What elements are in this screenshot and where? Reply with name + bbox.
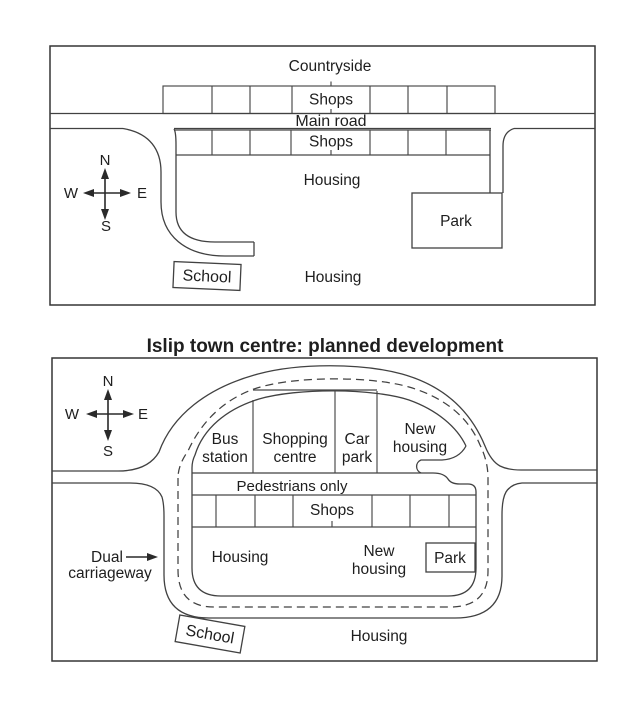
compass-now-n: N xyxy=(100,152,111,169)
car-park-label-line1: Car xyxy=(345,431,370,448)
shopping-centre-label-line1: Shopping xyxy=(262,431,328,448)
shops-planned-label: Shops xyxy=(310,502,354,519)
countryside-label: Countryside xyxy=(289,58,372,75)
compass-planned-west-arrow-icon xyxy=(86,410,97,418)
pedestrians-only-label: Pedestrians only xyxy=(237,478,348,495)
shops-south-label: Shops xyxy=(309,134,353,151)
compass-planned-w: W xyxy=(65,406,80,423)
school-now-label: School xyxy=(182,267,232,286)
map-now-panel: Islip town centre now Countryside Shops … xyxy=(50,21,595,305)
car-park-label-line2: park xyxy=(342,449,372,466)
main-road-label: Main road xyxy=(295,113,366,130)
maps-canvas: Islip town centre now Countryside Shops … xyxy=(0,0,640,707)
ring-road-outer-top-edge xyxy=(52,366,597,471)
new-housing-ne-label-line2: housing xyxy=(393,439,447,456)
compass-planned-e: E xyxy=(138,406,148,423)
compass-planned-east-arrow-icon xyxy=(123,410,134,418)
park-planned-label: Park xyxy=(434,550,466,567)
compass-now-w: W xyxy=(64,185,79,202)
park-road-right-edge xyxy=(503,129,514,194)
compass-now-e: E xyxy=(137,185,147,202)
housing-west-label: Housing xyxy=(212,549,269,566)
compass-planned-n: N xyxy=(103,373,114,390)
compass-now-east-arrow-icon xyxy=(120,189,131,197)
dual-carriageway-label-line1: Dual xyxy=(91,549,123,566)
compass-now-north-arrow-icon xyxy=(101,168,109,179)
bus-station-label-line1: Bus xyxy=(212,431,239,448)
main-road: Main road xyxy=(50,113,595,130)
new-housing-s-label-line1: New xyxy=(363,543,395,560)
housing-south-label: Housing xyxy=(305,269,362,286)
bus-station-label-line2: station xyxy=(202,449,248,466)
compass-now-west-arrow-icon xyxy=(83,189,94,197)
compass-planned-south-arrow-icon xyxy=(104,430,112,441)
map-planned-panel: Islip town centre: planned development N… xyxy=(52,336,597,661)
housing-mid-label: Housing xyxy=(304,172,361,189)
new-housing-ne-label-line1: New xyxy=(404,421,436,438)
housing-south-planned-label: Housing xyxy=(351,628,408,645)
shops-row-north: Shops xyxy=(163,82,495,114)
dual-carriageway-label-line2: carriageway xyxy=(68,565,152,582)
compass-now-s: S xyxy=(101,218,111,235)
school-road-inner-edge xyxy=(174,129,254,242)
dual-carriageway-arrow-icon xyxy=(147,553,158,561)
new-housing-s-label-line2: housing xyxy=(352,561,406,578)
shopping-centre-label-line2: centre xyxy=(273,449,316,466)
compass-now: N S W E xyxy=(64,152,147,235)
school-sign-planned: School xyxy=(175,615,245,653)
islip-maps-page: Islip town centre now Countryside Shops … xyxy=(0,0,640,707)
park-planned: Park xyxy=(426,543,475,572)
compass-planned-north-arrow-icon xyxy=(104,389,112,400)
dual-carriageway-callout: Dual carriageway xyxy=(68,549,158,582)
park-now-label: Park xyxy=(440,213,472,230)
park-now: Park xyxy=(412,193,502,248)
map-planned-title: Islip town centre: planned development xyxy=(147,336,504,357)
shops-north-label: Shops xyxy=(309,92,353,109)
shops-row-south: Shops xyxy=(174,130,491,155)
school-planned-label: School xyxy=(184,622,235,647)
park-road xyxy=(490,129,514,194)
compass-planned-s: S xyxy=(103,443,113,460)
town-centre-boxes: Bus station Shopping centre Car park xyxy=(202,390,377,473)
shops-row-planned: Shops xyxy=(192,495,476,527)
compass-planned: N S W E xyxy=(65,373,148,460)
school-sign-now: School xyxy=(173,262,241,291)
